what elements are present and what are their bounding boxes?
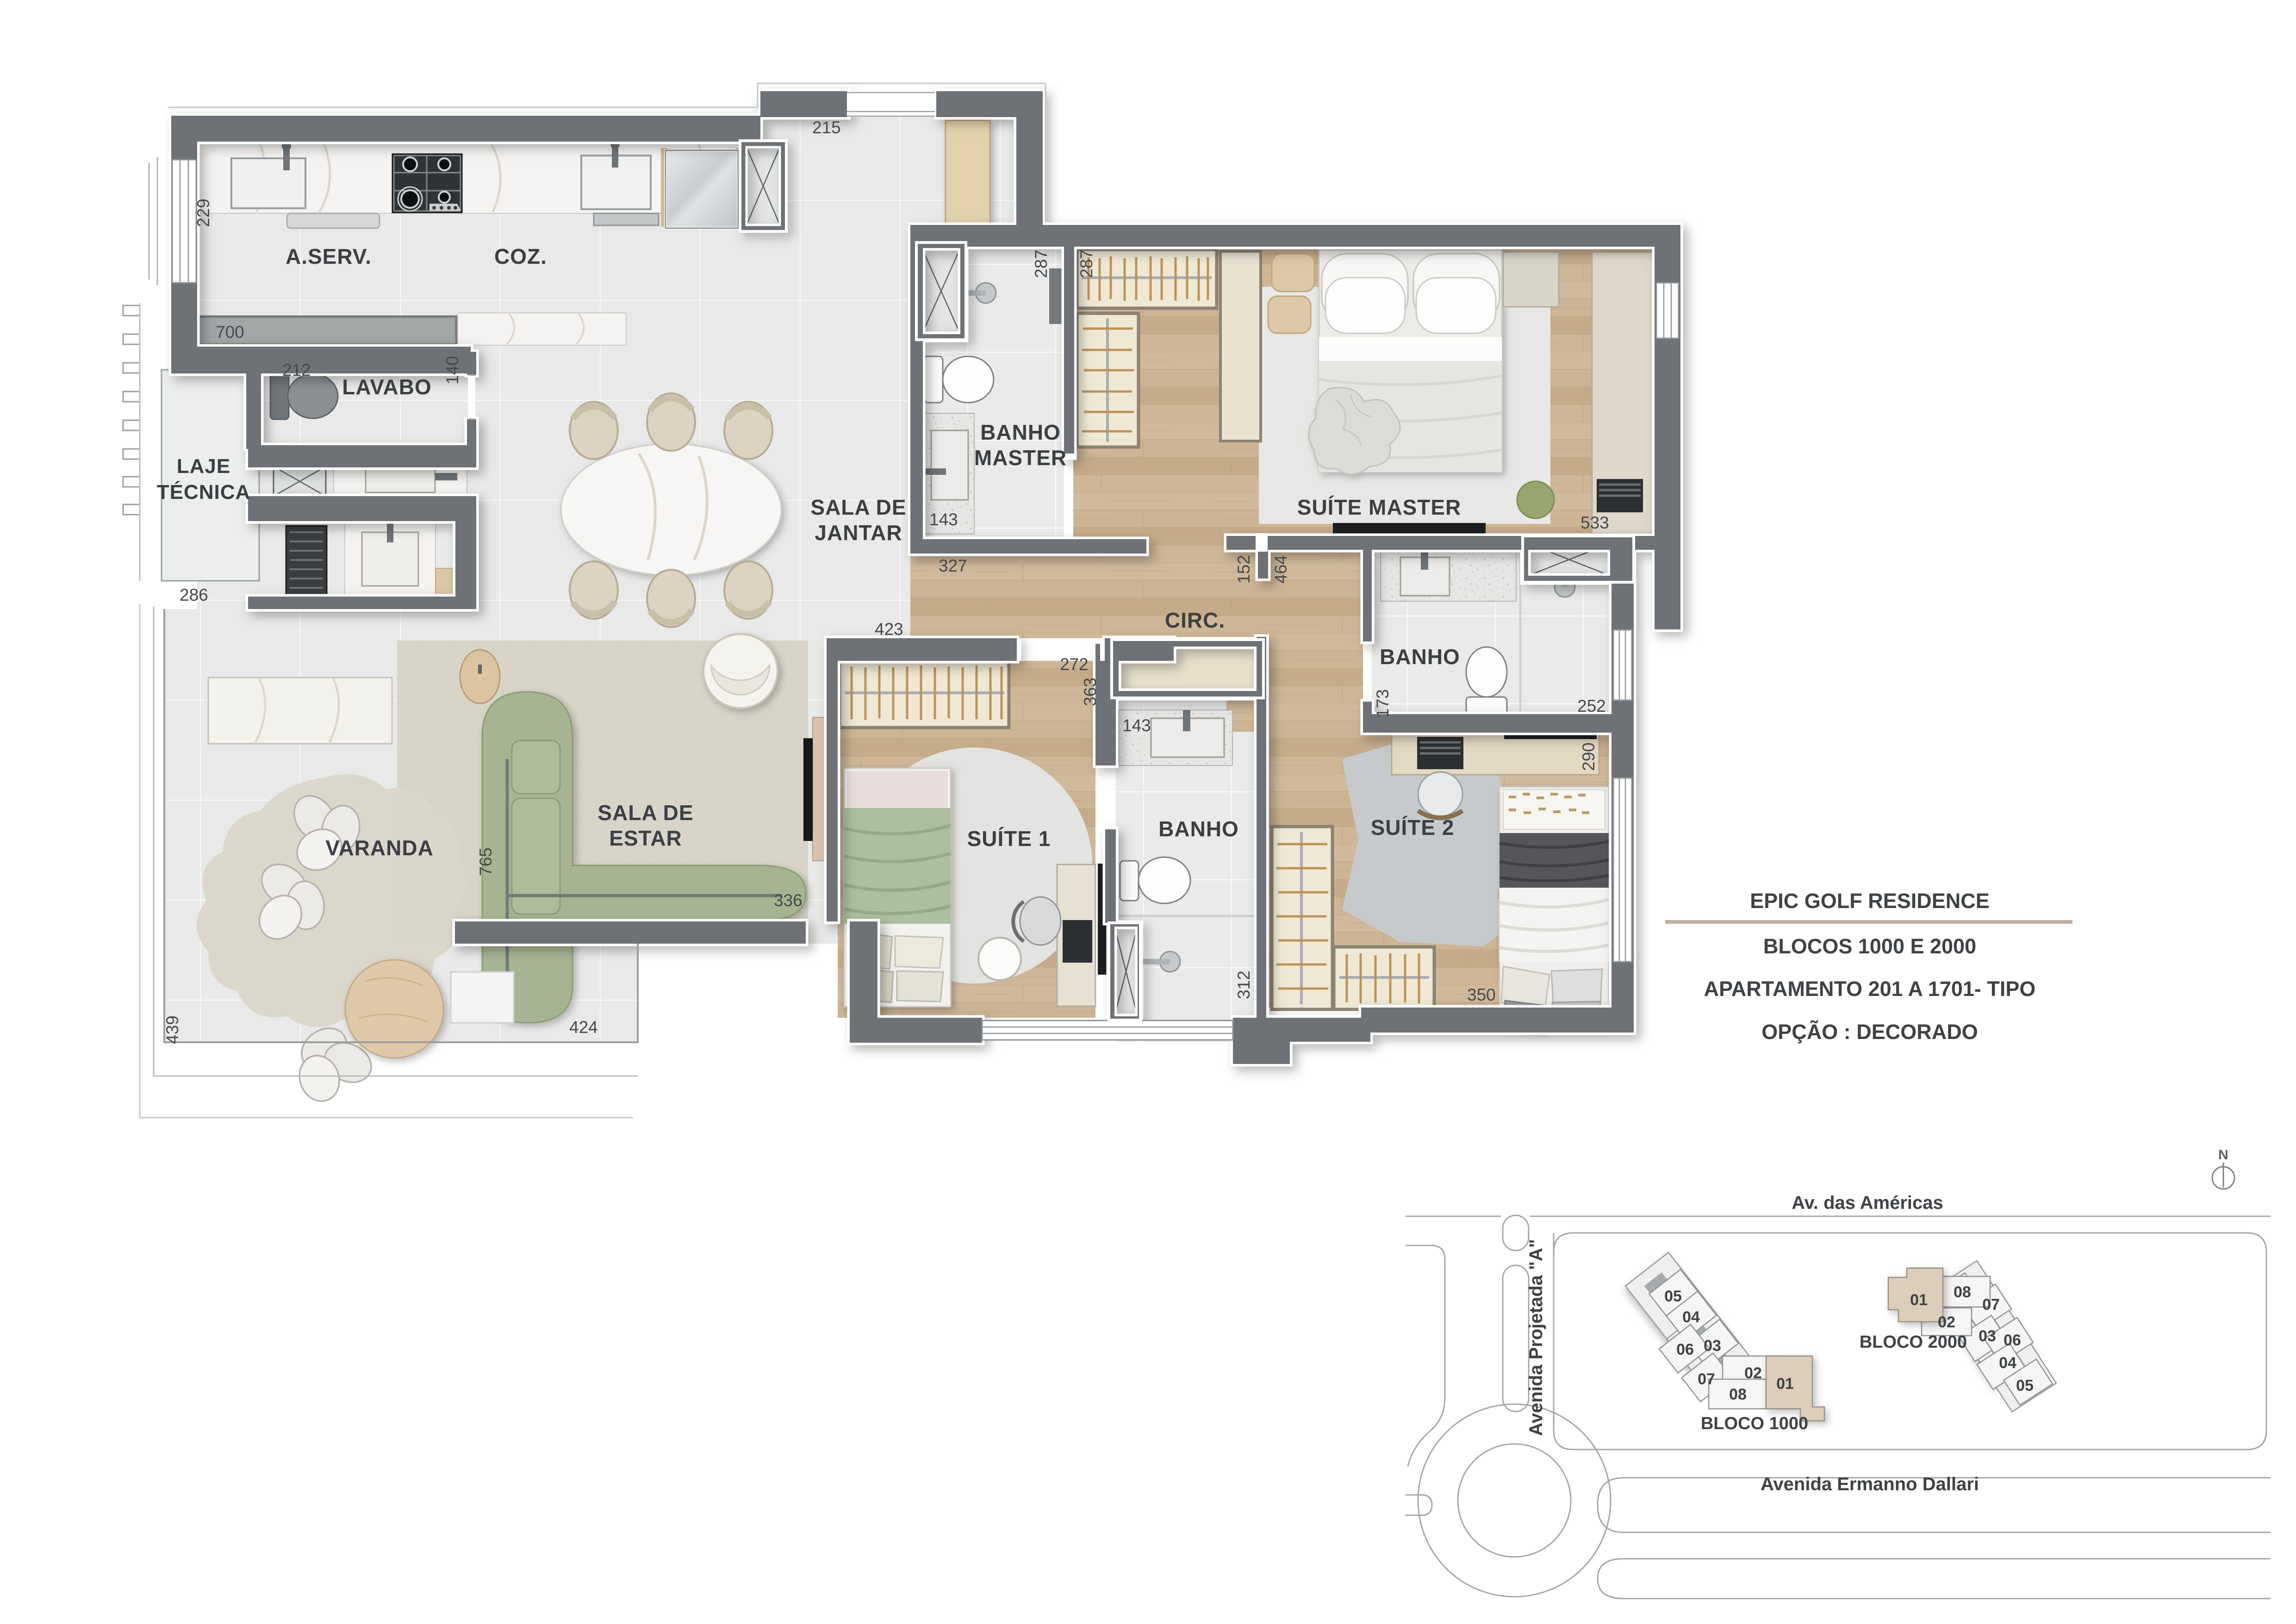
svg-text:CIRC.: CIRC. bbox=[1165, 608, 1225, 632]
svg-text:215: 215 bbox=[812, 118, 841, 137]
svg-text:143: 143 bbox=[929, 510, 958, 529]
svg-text:SUÍTE 1: SUÍTE 1 bbox=[967, 827, 1051, 851]
svg-text:07: 07 bbox=[1698, 1370, 1715, 1388]
svg-text:252: 252 bbox=[1577, 697, 1606, 716]
svg-text:272: 272 bbox=[1060, 655, 1089, 674]
svg-text:MASTER: MASTER bbox=[974, 446, 1067, 470]
svg-text:363: 363 bbox=[1081, 678, 1100, 706]
svg-text:03: 03 bbox=[1979, 1327, 1996, 1345]
svg-text:SALA DE: SALA DE bbox=[810, 495, 906, 519]
svg-text:350: 350 bbox=[1467, 985, 1496, 1004]
svg-text:LAVABO: LAVABO bbox=[342, 375, 431, 399]
svg-text:BANHO: BANHO bbox=[980, 420, 1061, 444]
svg-text:464: 464 bbox=[1271, 555, 1290, 584]
svg-text:01: 01 bbox=[1776, 1375, 1794, 1393]
svg-text:LAJE: LAJE bbox=[177, 455, 230, 478]
svg-text:JANTAR: JANTAR bbox=[815, 521, 902, 545]
svg-text:08: 08 bbox=[1954, 1283, 1971, 1301]
svg-text:06: 06 bbox=[2004, 1332, 2021, 1349]
svg-text:Avenida Projetada "A": Avenida Projetada "A" bbox=[1526, 1239, 1546, 1436]
svg-text:423: 423 bbox=[875, 620, 903, 639]
svg-text:OPÇÃO : DECORADO: OPÇÃO : DECORADO bbox=[1761, 1020, 1978, 1044]
svg-text:152: 152 bbox=[1234, 555, 1253, 584]
svg-text:140: 140 bbox=[443, 356, 462, 385]
svg-text:COZ.: COZ. bbox=[494, 244, 547, 268]
svg-text:700: 700 bbox=[216, 323, 244, 342]
svg-text:ESTAR: ESTAR bbox=[609, 826, 682, 850]
svg-text:08: 08 bbox=[1729, 1386, 1747, 1403]
svg-text:APARTAMENTO 201 A 1701- TIPO: APARTAMENTO 201 A 1701- TIPO bbox=[1704, 977, 2036, 1001]
svg-text:Avenida Ermanno Dallari: Avenida Ermanno Dallari bbox=[1761, 1474, 1979, 1494]
svg-text:BANHO: BANHO bbox=[1158, 817, 1239, 841]
svg-text:287: 287 bbox=[1032, 249, 1051, 278]
svg-text:02: 02 bbox=[1938, 1313, 1955, 1331]
svg-text:533: 533 bbox=[1580, 513, 1609, 532]
svg-text:229: 229 bbox=[194, 199, 213, 227]
svg-text:424: 424 bbox=[569, 1018, 598, 1037]
svg-text:143: 143 bbox=[1122, 716, 1151, 735]
svg-text:SUÍTE MASTER: SUÍTE MASTER bbox=[1297, 495, 1461, 519]
svg-text:05: 05 bbox=[1664, 1288, 1682, 1305]
svg-text:05: 05 bbox=[2016, 1377, 2034, 1394]
svg-text:06: 06 bbox=[1676, 1341, 1694, 1358]
svg-text:TÉCNICA: TÉCNICA bbox=[157, 480, 251, 504]
svg-text:BLOCO 1000: BLOCO 1000 bbox=[1701, 1414, 1808, 1433]
svg-text:336: 336 bbox=[774, 891, 803, 910]
svg-text:SUÍTE 2: SUÍTE 2 bbox=[1371, 815, 1455, 840]
svg-text:VARANDA: VARANDA bbox=[325, 836, 434, 860]
svg-text:173: 173 bbox=[1373, 689, 1392, 718]
svg-text:290: 290 bbox=[1579, 742, 1598, 771]
svg-text:01: 01 bbox=[1910, 1291, 1928, 1309]
svg-text:327: 327 bbox=[939, 556, 967, 575]
svg-text:02: 02 bbox=[1744, 1364, 1762, 1382]
svg-text:312: 312 bbox=[1234, 971, 1253, 999]
svg-text:04: 04 bbox=[1999, 1354, 2016, 1372]
svg-text:BLOCO 2000: BLOCO 2000 bbox=[1860, 1332, 1967, 1352]
svg-text:287: 287 bbox=[1077, 249, 1096, 278]
svg-text:04: 04 bbox=[1682, 1308, 1700, 1326]
svg-text:286: 286 bbox=[180, 585, 208, 604]
svg-text:SALA DE: SALA DE bbox=[597, 801, 693, 825]
svg-text:07: 07 bbox=[1982, 1296, 2000, 1313]
svg-text:212: 212 bbox=[282, 361, 311, 380]
svg-text:Av. das Américas: Av. das Américas bbox=[1792, 1193, 1943, 1213]
svg-text:BANHO: BANHO bbox=[1380, 645, 1460, 669]
svg-text:EPIC GOLF RESIDENCE: EPIC GOLF RESIDENCE bbox=[1750, 889, 1990, 913]
svg-text:A.SERV.: A.SERV. bbox=[286, 244, 372, 268]
svg-text:765: 765 bbox=[476, 847, 495, 876]
svg-text:BLOCOS 1000 E 2000: BLOCOS 1000 E 2000 bbox=[1763, 934, 1976, 958]
svg-text:439: 439 bbox=[163, 1015, 182, 1044]
svg-text:N: N bbox=[2218, 1147, 2228, 1163]
svg-text:03: 03 bbox=[1704, 1337, 1721, 1355]
